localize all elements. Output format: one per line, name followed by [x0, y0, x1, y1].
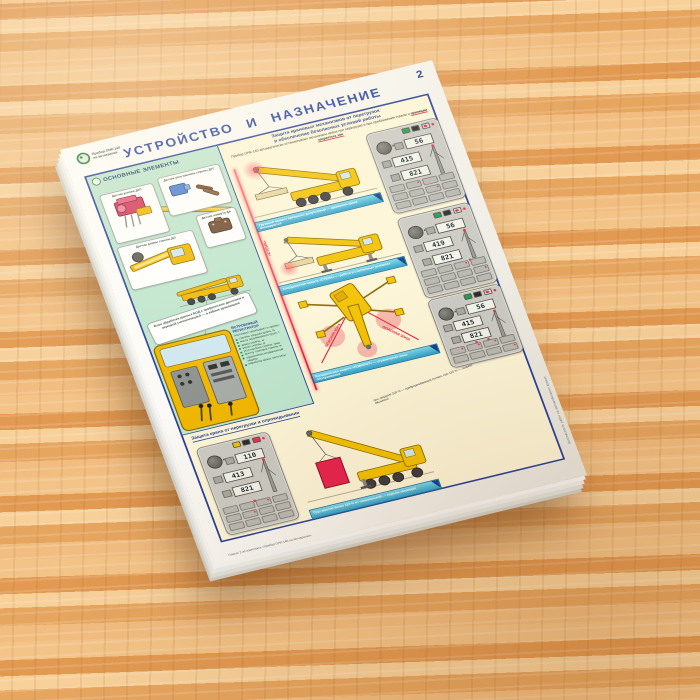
black-lamp-icon: [442, 209, 452, 216]
speaker-icon: [437, 306, 456, 322]
black-lamp-icon: [473, 291, 483, 298]
black-lamp-icon: [411, 125, 421, 132]
moment-display: 821: [231, 481, 262, 497]
red-lamp-icon: [251, 436, 261, 443]
radius-display: 419: [423, 236, 454, 252]
red-lamp-icon: [452, 207, 462, 214]
alarm-dot-icon: [431, 123, 434, 126]
wooden-table-surface: Прибор ОНК-140 на автокранах 2 УСТРОЙСТВ…: [0, 0, 700, 700]
poster-sheet: Прибор ОНК-140 на автокранах 2 УСТРОЙСТВ…: [60, 60, 587, 565]
speaker-icon: [374, 140, 393, 156]
green-lamp-icon: [432, 212, 442, 219]
alarm-dot-icon: [493, 289, 496, 292]
radius-display: 415: [391, 151, 422, 167]
speaker-icon: [205, 454, 224, 470]
green-lamp-icon: [401, 127, 411, 134]
panel-button-grid: [222, 493, 295, 531]
yellow-lamp-icon: [231, 441, 241, 448]
red-lamp-icon: [421, 122, 431, 129]
alarm-dot-icon: [262, 437, 265, 440]
green-lamp-icon: [463, 293, 473, 300]
alarm-dot-icon: [463, 207, 466, 210]
speaker-icon: [406, 224, 425, 240]
wall-label: «СТЕНА»: [261, 240, 272, 257]
content-frame: ОСНОВНЫЕ ЭЛЕМЕНТЫ Датчик: [84, 93, 565, 542]
black-lamp-icon: [241, 439, 251, 446]
boom-length-sensor-illustration: [123, 236, 201, 280]
radius-display: 413: [222, 467, 253, 483]
red-lamp-icon: [483, 288, 493, 295]
poster-pad: Прибор ОНК-140 на автокранах 2 УСТРОЙСТВ…: [60, 60, 587, 565]
